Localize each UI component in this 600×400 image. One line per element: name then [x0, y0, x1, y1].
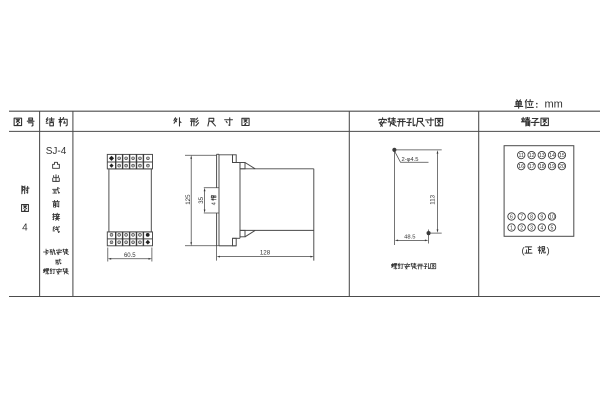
svg-text:4: 4	[540, 225, 543, 231]
svg-text:5: 5	[551, 225, 554, 231]
svg-text:20: 20	[559, 164, 565, 170]
svg-text:7: 7	[520, 214, 523, 220]
svg-text:17: 17	[529, 164, 535, 170]
svg-text:12: 12	[529, 153, 535, 159]
svg-text:1: 1	[510, 225, 513, 231]
svg-text:11: 11	[519, 153, 524, 159]
svg-text:10: 10	[549, 214, 555, 220]
svg-text:48.5: 48.5	[404, 235, 415, 241]
svg-text:15: 15	[559, 153, 565, 159]
svg-text:2-φ4.5: 2-φ4.5	[402, 157, 419, 163]
svg-text:125: 125	[185, 194, 192, 205]
svg-text:3: 3	[530, 225, 533, 231]
svg-text:4: 4	[211, 202, 217, 205]
svg-text:4: 4	[22, 222, 28, 233]
svg-text:8: 8	[530, 214, 533, 220]
svg-text:SJ-4: SJ-4	[46, 146, 67, 157]
svg-text:): )	[547, 246, 550, 257]
svg-text:9: 9	[540, 214, 543, 220]
svg-text:35: 35	[199, 196, 205, 203]
svg-text:128: 128	[260, 249, 271, 256]
svg-text:14: 14	[549, 153, 555, 159]
svg-text:19: 19	[549, 164, 555, 170]
svg-text:mm: mm	[545, 98, 563, 110]
svg-text:60.5: 60.5	[124, 253, 136, 259]
svg-text:13: 13	[539, 153, 545, 159]
svg-text:16: 16	[518, 164, 524, 170]
svg-text:2: 2	[520, 225, 523, 231]
svg-text:(: (	[522, 246, 526, 257]
svg-text:113: 113	[430, 194, 437, 204]
svg-text:6: 6	[510, 214, 513, 220]
svg-text:18: 18	[539, 164, 545, 170]
